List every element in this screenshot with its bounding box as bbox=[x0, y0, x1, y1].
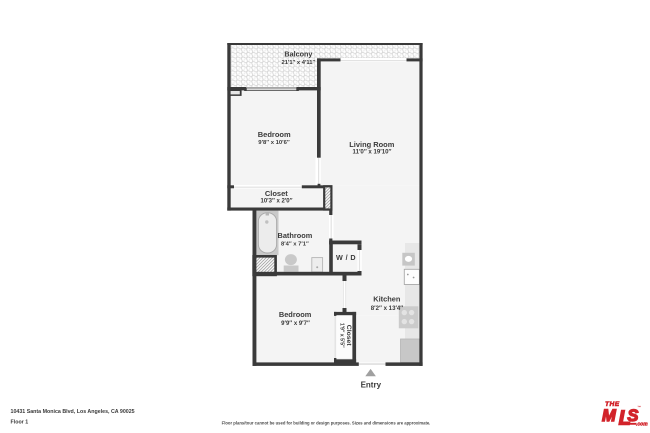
svg-text:.com: .com bbox=[636, 421, 648, 427]
svg-text:1′9″ x 5′5″: 1′9″ x 5′5″ bbox=[339, 323, 345, 348]
svg-text:Living Room: Living Room bbox=[349, 140, 394, 149]
svg-text:21′1″ x 4′11″: 21′1″ x 4′11″ bbox=[281, 60, 315, 66]
svg-text:Entry: Entry bbox=[361, 381, 382, 390]
svg-text:10′3″ x 2′0″: 10′3″ x 2′0″ bbox=[261, 199, 293, 205]
svg-text:Bathroom: Bathroom bbox=[278, 231, 313, 240]
svg-text:™: ™ bbox=[637, 405, 641, 409]
svg-text:Bedroom: Bedroom bbox=[279, 310, 312, 319]
svg-text:11′0″ x 19′10″: 11′0″ x 19′10″ bbox=[353, 149, 392, 156]
svg-text:8′2″ x 13′4″: 8′2″ x 13′4″ bbox=[371, 305, 404, 312]
svg-text:10431 Santa Monica Blvd, Los A: 10431 Santa Monica Blvd, Los Angeles, CA… bbox=[11, 409, 135, 415]
svg-text:9′8″ x 10′6″: 9′8″ x 10′6″ bbox=[258, 140, 290, 146]
svg-text:Balcony: Balcony bbox=[284, 50, 312, 59]
svg-text:Floor plans/tour cannot be use: Floor plans/tour cannot be used for buil… bbox=[222, 420, 431, 425]
svg-text:9′9″ x 9′7″: 9′9″ x 9′7″ bbox=[281, 321, 310, 327]
svg-text:8′4″ x 7′1″: 8′4″ x 7′1″ bbox=[281, 241, 309, 247]
svg-text:Kitchen: Kitchen bbox=[373, 295, 401, 304]
svg-text:Closet: Closet bbox=[345, 325, 352, 347]
svg-text:Bedroom: Bedroom bbox=[258, 130, 291, 139]
svg-text:W / D: W / D bbox=[336, 253, 356, 262]
svg-text:M: M bbox=[602, 407, 617, 425]
svg-text:Floor 1: Floor 1 bbox=[11, 420, 29, 426]
svg-text:Closet: Closet bbox=[265, 189, 288, 198]
